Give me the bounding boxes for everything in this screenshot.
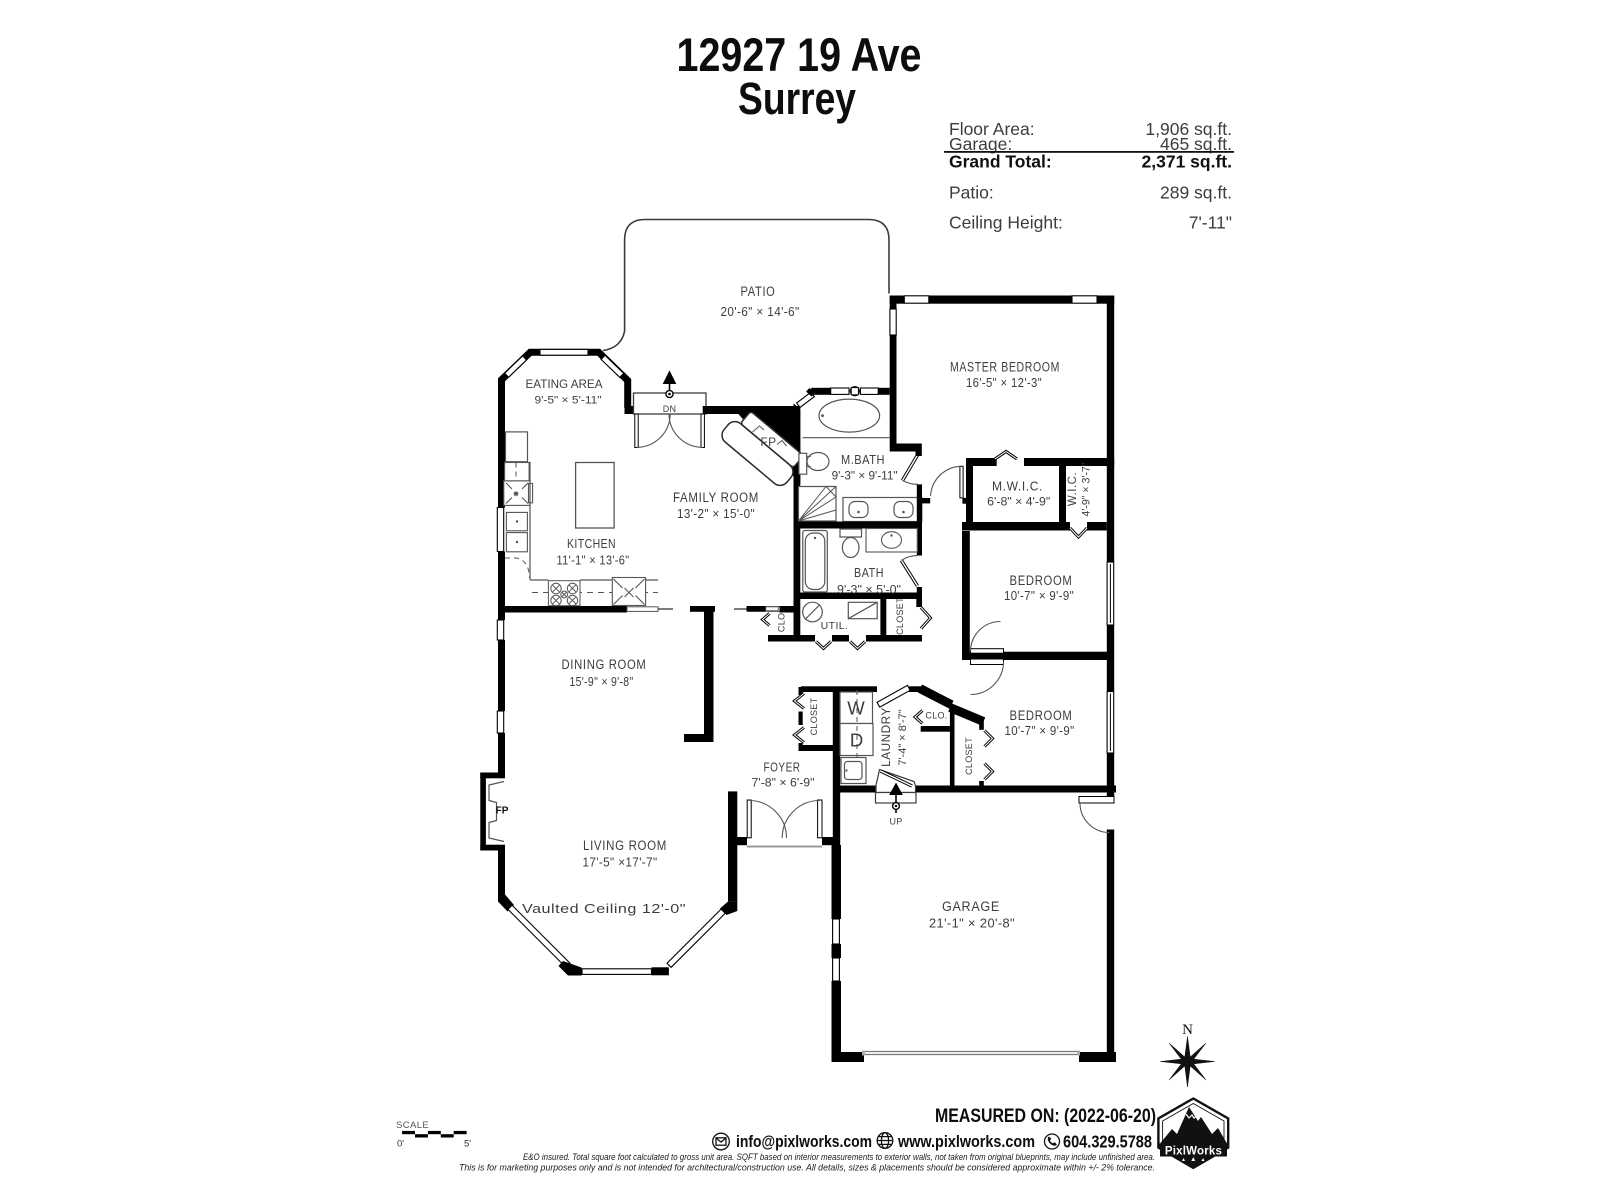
svg-text:10'-7" × 9'-9": 10'-7" × 9'-9" [1004,588,1074,603]
svg-text:0': 0' [397,1139,404,1150]
svg-text:MASTER BEDROOM: MASTER BEDROOM [950,360,1060,375]
svg-text:289 sq.ft.: 289 sq.ft. [1160,183,1232,203]
svg-text:CLO.: CLO. [777,610,787,632]
svg-text:10'-7" × 9'-9": 10'-7" × 9'-9" [1005,723,1075,738]
svg-text:15'-9" × 9'-8": 15'-9" × 9'-8" [570,674,634,689]
svg-text:CLO.: CLO. [925,711,947,721]
svg-text:FP: FP [496,806,509,817]
svg-text:Ceiling Height:: Ceiling Height: [949,213,1063,233]
svg-text:9'-3" × 5'-0": 9'-3" × 5'-0" [837,583,901,597]
svg-text:11'-1" × 13'-6": 11'-1" × 13'-6" [557,553,630,568]
svg-text:This is for marketing purposes: This is for marketing purposes only and … [459,1163,1155,1174]
svg-text:LIVING ROOM: LIVING ROOM [583,838,667,853]
svg-text:BEDROOM: BEDROOM [1010,708,1073,723]
svg-text:Patio:: Patio: [949,183,994,203]
svg-text:604.329.5788: 604.329.5788 [1063,1132,1152,1152]
svg-text:DN: DN [663,404,677,414]
svg-text:4'-9" × 3'-7": 4'-9" × 3'-7" [1081,462,1093,516]
svg-text:9'-5" × 5'-11": 9'-5" × 5'-11" [535,395,602,407]
svg-text:info@pixlworks.com: info@pixlworks.com [736,1132,872,1151]
svg-text:CLOSET: CLOSET [895,597,905,635]
svg-text:PixlWorks: PixlWorks [1165,1146,1222,1158]
svg-text:D: D [850,730,863,751]
svg-text:N: N [1182,1022,1193,1038]
svg-text:W.I.C.: W.I.C. [1067,472,1079,506]
svg-text:20'-6" × 14'-6": 20'-6" × 14'-6" [721,304,800,319]
svg-text:PATIO: PATIO [741,284,776,299]
svg-text:Surrey: Surrey [738,73,856,124]
svg-text:UTIL.: UTIL. [821,620,849,632]
svg-text:7'-4" × 8'-7": 7'-4" × 8'-7" [897,709,909,765]
svg-text:6'-8" × 4'-9": 6'-8" × 4'-9" [987,495,1050,509]
svg-text:17'-5" ×17'-7": 17'-5" ×17'-7" [583,855,658,870]
svg-text:5': 5' [464,1139,471,1150]
svg-text:BEDROOM: BEDROOM [1010,573,1073,588]
svg-text:CLOSET: CLOSET [809,697,819,735]
svg-text:EATING AREA: EATING AREA [526,379,603,391]
svg-text:21'-1" × 20'-8": 21'-1" × 20'-8" [929,916,1015,931]
svg-text:CLOSET: CLOSET [964,737,974,775]
svg-text:BATH: BATH [854,566,884,580]
svg-text:E&O insured. Total square foo: E&O insured. Total square foot calculate… [523,1152,1155,1163]
svg-text:FAMILY ROOM: FAMILY ROOM [673,490,759,505]
svg-text:FP: FP [760,435,776,449]
svg-text:13'-2" × 15'-0": 13'-2" × 15'-0" [677,506,755,521]
svg-text:M.BATH: M.BATH [841,453,885,467]
svg-text:Grand Total:: Grand Total: [949,152,1052,172]
svg-text:SCALE: SCALE [396,1120,429,1131]
svg-text:M.W.I.C.: M.W.I.C. [992,480,1043,494]
svg-text:9'-3" × 9'-11": 9'-3" × 9'-11" [832,469,898,483]
svg-text:www.pixlworks.com: www.pixlworks.com [897,1132,1035,1151]
svg-text:KITCHEN: KITCHEN [567,537,616,551]
svg-text:LAUNDRY: LAUNDRY [879,707,893,767]
svg-text:16'-5" × 12'-3": 16'-5" × 12'-3" [966,375,1042,390]
svg-text:UP: UP [889,817,902,827]
svg-text:MEASURED ON: (2022-06-20): MEASURED ON: (2022-06-20) [935,1105,1156,1127]
svg-text:Vaulted Ceiling 12'-0": Vaulted Ceiling 12'-0" [522,901,686,916]
svg-text:FOYER: FOYER [764,761,801,775]
svg-text:7'-8" × 6'-9": 7'-8" × 6'-9" [752,776,815,790]
svg-text:DINING ROOM: DINING ROOM [562,657,647,672]
svg-text:2,371 sq.ft.: 2,371 sq.ft. [1142,152,1232,172]
svg-text:GARAGE: GARAGE [942,899,1000,914]
svg-text:7'-11": 7'-11" [1189,213,1232,233]
svg-text:W: W [847,698,865,719]
